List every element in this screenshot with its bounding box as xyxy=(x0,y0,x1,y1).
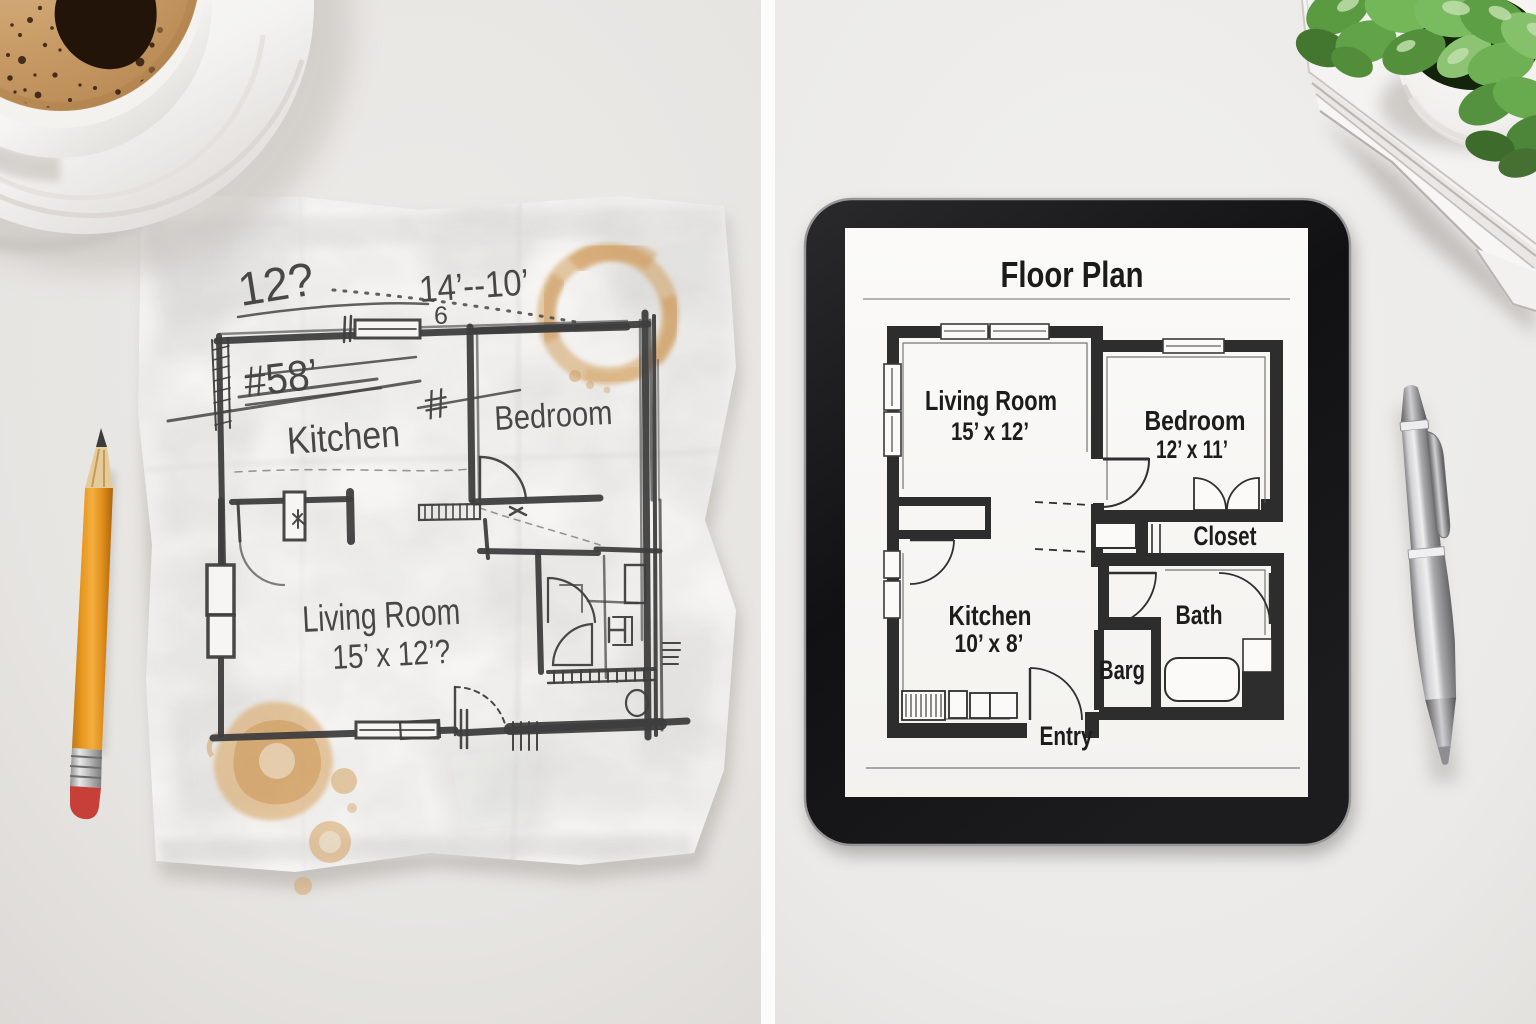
svg-text:10’ x 8’: 10’ x 8’ xyxy=(955,630,1024,658)
svg-text:Bedroom: Bedroom xyxy=(493,394,613,438)
svg-text:Barg: Barg xyxy=(1099,655,1145,685)
svg-text:12’ x 11’: 12’ x 11’ xyxy=(1156,436,1228,464)
svg-text:Kitchen: Kitchen xyxy=(286,413,402,463)
svg-text:6: 6 xyxy=(434,302,448,330)
svg-text:Closet: Closet xyxy=(1194,521,1257,551)
svg-text:Entry: Entry xyxy=(1040,721,1093,751)
svg-text:Kitchen: Kitchen xyxy=(949,600,1032,631)
svg-text:15’ x 12’?: 15’ x 12’? xyxy=(331,633,451,677)
svg-text:Floor Plan: Floor Plan xyxy=(1001,254,1144,295)
svg-text:Living Room: Living Room xyxy=(925,385,1057,416)
svg-text:Bath: Bath xyxy=(1176,600,1223,630)
svg-text:Bedroom: Bedroom xyxy=(1145,405,1246,436)
svg-text:15’ x 12’: 15’ x 12’ xyxy=(951,418,1029,446)
